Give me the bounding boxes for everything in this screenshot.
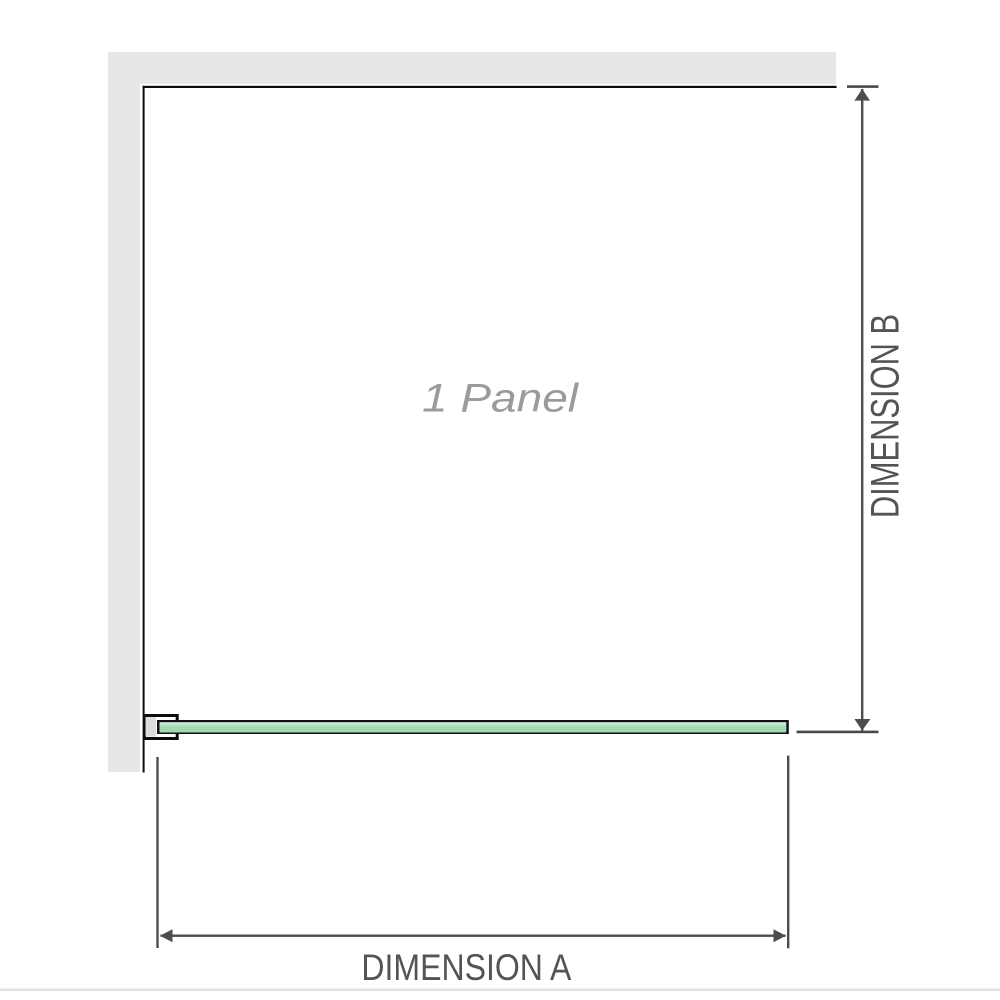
svg-text:DIMENSION B: DIMENSION B [862,314,907,518]
svg-text:1 Panel: 1 Panel [422,376,579,421]
svg-text:DIMENSION A: DIMENSION A [361,948,571,989]
